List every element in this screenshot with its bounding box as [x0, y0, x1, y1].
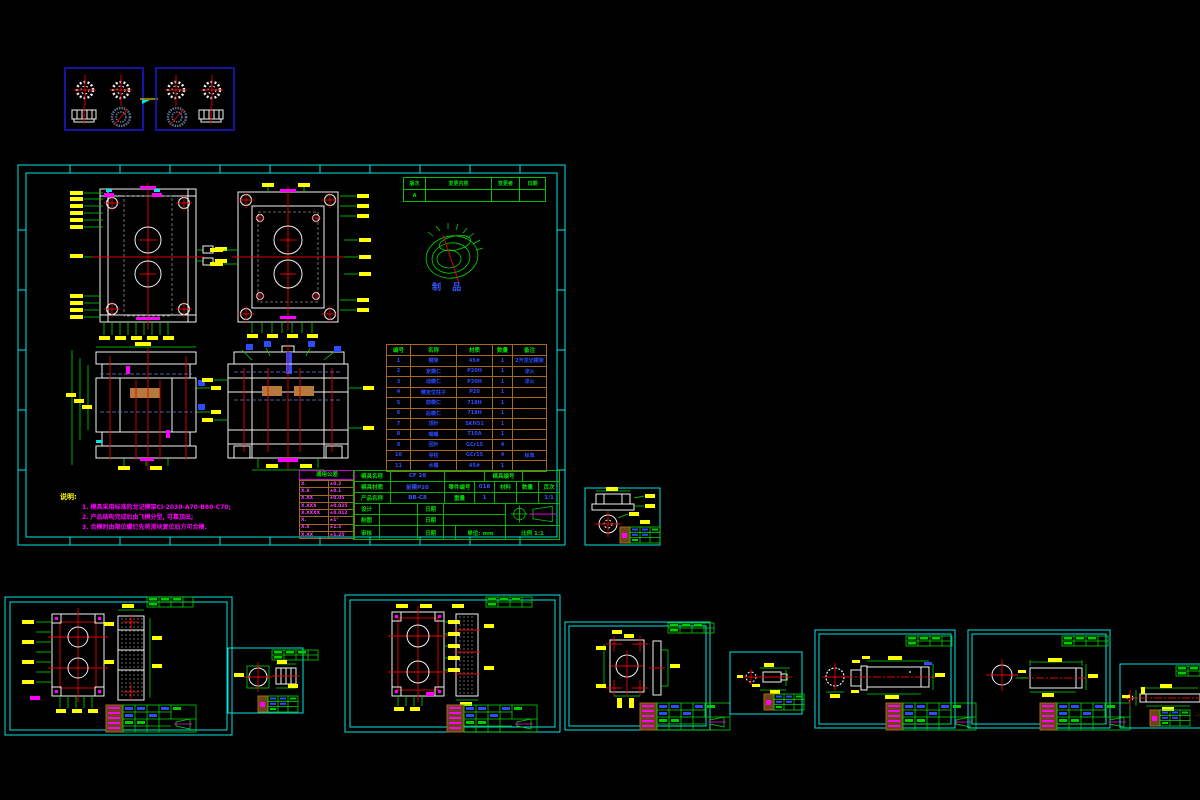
table-row: 10导柱GCr154标准 [387, 450, 547, 461]
mold-section-view-right[interactable] [202, 341, 374, 470]
sheet-small-cap-detail[interactable] [585, 487, 660, 545]
sheet-small-insert[interactable] [228, 648, 318, 713]
cap-part-icon [112, 108, 130, 126]
bill-of-materials-table: 编号名称材质数量备注1模架45#12开龙记模架2定模仁P20H1淬火3动模仁P2… [386, 344, 547, 472]
sheet-ejector-pin[interactable] [1120, 664, 1200, 728]
thumbnail-box-left[interactable] [65, 68, 143, 130]
table-row: 8唧嘴T10A1 [387, 429, 547, 440]
note-line: 3. 合模时由限位螺钉先将滑块复位后方可合模. [82, 523, 320, 533]
scale-label: 比例 1:1 [505, 525, 560, 540]
sheet-guide-bush[interactable] [968, 630, 1130, 730]
technical-notes: 说明: 1. 模具采用标准的龙记模架CI-2030-A70-B80-C70; 2… [60, 484, 320, 533]
note-line: 1. 模具采用标准的龙记模架CI-2030-A70-B80-C70; [82, 503, 320, 513]
cad-linework [0, 0, 1200, 800]
thumbnail-box-right[interactable] [156, 68, 234, 130]
tolerance-table-title: 通用公差 [299, 470, 355, 480]
table-row: 5前模仁718H1 [387, 398, 547, 409]
note-line: 2. 产品结构完成后由飞模分型, 可靠顶出; [82, 513, 320, 523]
table-row: 版次变更内容变更者日期 [404, 178, 546, 190]
molded-product-wireframe[interactable] [423, 223, 483, 283]
table-row: X.±0.2 [300, 481, 355, 488]
sheet-guide-pin[interactable] [815, 630, 976, 730]
sheet-core-plate[interactable] [345, 595, 560, 732]
unit-label: 单位: mm [455, 525, 506, 540]
sheet-cavity-plate[interactable] [5, 597, 232, 735]
table-row: 2定模仁P20H1淬火 [387, 366, 547, 377]
table-row: 3动模仁P20H1淬火 [387, 377, 547, 388]
table-row: 7顶针SKH511 [387, 419, 547, 430]
table-row: 1模架45#12开龙记模架 [387, 356, 547, 367]
sheet-small-pin-detail[interactable] [730, 652, 804, 714]
connector-part-icon [72, 106, 96, 124]
cad-model-space: 版次变更内容变更者日期A 制 品 编号名称材质数量备注1模架45#12开龙记模架… [0, 0, 1200, 800]
table-row: X.X±0.1 [300, 488, 355, 495]
table-row: X.XX±1.25' [300, 532, 355, 539]
table-row: 6后模仁718H1 [387, 408, 547, 419]
date-label: 日期 [417, 525, 444, 540]
notes-title: 说明: [60, 493, 77, 501]
projection-symbol-cell [505, 503, 560, 526]
connector-part-icon [199, 106, 223, 124]
table-row: X.XXX±0.025 [300, 502, 355, 509]
table-row: A [404, 190, 546, 202]
third-angle-projection-icon [506, 503, 559, 526]
mold-section-view-left[interactable] [66, 342, 221, 470]
blank-cell [379, 525, 418, 540]
table-row: 4精定位柱子P201 [387, 387, 547, 398]
table-row: X.±1° [300, 517, 355, 524]
product-caption: 制 品 [432, 280, 465, 293]
table-row: X.X±1.5' [300, 524, 355, 531]
table-row: 9回针GCr154 [387, 440, 547, 451]
cap-part-icon [168, 108, 186, 126]
table-row: 编号名称材质数量备注 [387, 345, 547, 356]
title-block: 模具名称 CF 28 模具编号 模具材质 前模P20 零件编号 018 材料 数… [353, 470, 560, 540]
mold-plan-view-right[interactable] [210, 183, 371, 338]
sheet-support-plate[interactable] [565, 622, 730, 730]
mold-plan-view-left[interactable] [70, 183, 227, 340]
table-row: X.XXXX±0.012 [300, 510, 355, 517]
tolerance-table: X.±0.2X.X±0.1X.XX±0.05X.XXX±0.025X.XXXX±… [299, 480, 355, 539]
table-row: X.XX±0.05 [300, 495, 355, 502]
revision-table: 版次变更内容变更者日期A [403, 177, 546, 202]
approve-label: 审核 [353, 525, 380, 540]
